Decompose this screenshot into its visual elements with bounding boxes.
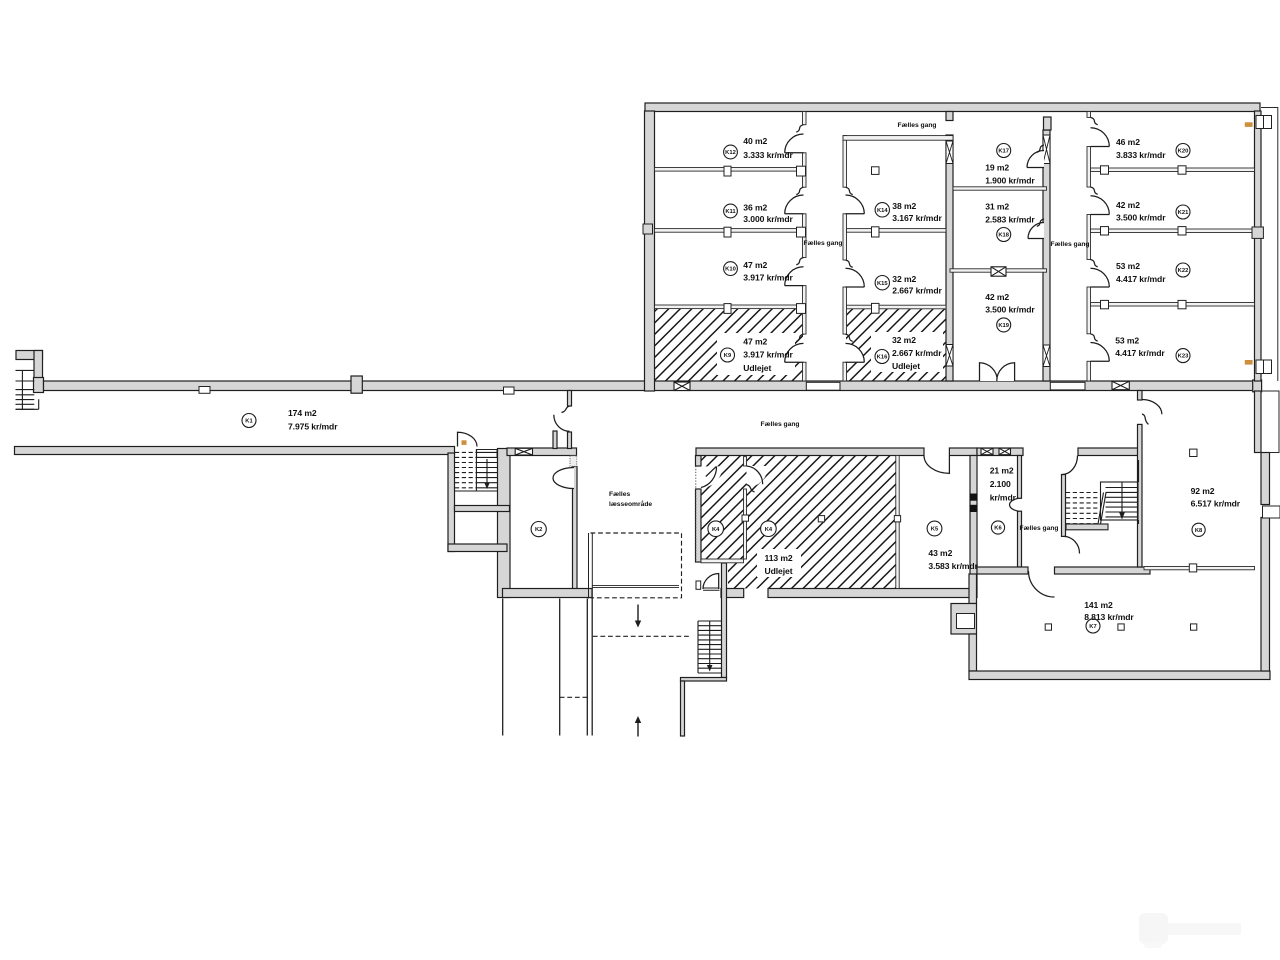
svg-text:46 m2: 46 m2 bbox=[1116, 137, 1140, 147]
svg-text:Udlejet: Udlejet bbox=[743, 363, 771, 373]
svg-text:K14: K14 bbox=[877, 208, 888, 214]
svg-text:53 m2: 53 m2 bbox=[1115, 336, 1139, 346]
svg-text:42 m2: 42 m2 bbox=[985, 292, 1009, 302]
svg-text:Fælles gang: Fælles gang bbox=[803, 240, 842, 247]
svg-text:6.517 kr/mdr: 6.517 kr/mdr bbox=[1191, 498, 1241, 508]
svg-text:K7: K7 bbox=[1089, 624, 1096, 630]
svg-text:3.583 kr/mdr: 3.583 kr/mdr bbox=[928, 561, 978, 571]
svg-text:3.500 kr/mdr: 3.500 kr/mdr bbox=[1116, 213, 1166, 223]
svg-text:40 m2: 40 m2 bbox=[743, 136, 767, 146]
svg-text:3.833 kr/mdr: 3.833 kr/mdr bbox=[1116, 150, 1166, 160]
svg-text:K23: K23 bbox=[1178, 354, 1189, 360]
svg-text:K21: K21 bbox=[1178, 210, 1189, 216]
svg-text:32 m2: 32 m2 bbox=[892, 335, 916, 345]
svg-text:38 m2: 38 m2 bbox=[892, 201, 916, 211]
svg-text:Udlejet: Udlejet bbox=[892, 361, 920, 371]
svg-text:4.417 kr/mdr: 4.417 kr/mdr bbox=[1116, 274, 1166, 284]
svg-text:3.000 kr/mdr: 3.000 kr/mdr bbox=[743, 214, 793, 224]
svg-text:2.100: 2.100 bbox=[990, 479, 1011, 489]
svg-text:7.975 kr/mdr: 7.975 kr/mdr bbox=[288, 422, 338, 432]
svg-text:3.333 kr/mdr: 3.333 kr/mdr bbox=[743, 150, 793, 160]
svg-text:4.417 kr/mdr: 4.417 kr/mdr bbox=[1115, 348, 1165, 358]
svg-text:3.917 kr/mdr: 3.917 kr/mdr bbox=[743, 350, 793, 360]
svg-text:K16: K16 bbox=[877, 355, 888, 361]
svg-text:K18: K18 bbox=[998, 233, 1009, 239]
svg-text:K4: K4 bbox=[765, 527, 773, 533]
svg-text:47 m2: 47 m2 bbox=[743, 337, 767, 347]
svg-text:43 m2: 43 m2 bbox=[928, 548, 952, 558]
svg-text:3.917 kr/mdr: 3.917 kr/mdr bbox=[743, 273, 793, 283]
svg-text:42 m2: 42 m2 bbox=[1116, 200, 1140, 210]
svg-text:47 m2: 47 m2 bbox=[743, 260, 767, 270]
svg-text:53 m2: 53 m2 bbox=[1116, 261, 1140, 271]
svg-text:K19: K19 bbox=[998, 323, 1009, 329]
svg-text:Fælles gang: Fælles gang bbox=[760, 421, 799, 428]
svg-text:Fælles gang: Fælles gang bbox=[1050, 241, 1089, 248]
svg-text:21 m2: 21 m2 bbox=[990, 466, 1014, 476]
svg-text:K5: K5 bbox=[931, 527, 939, 533]
svg-text:Fælles: Fælles bbox=[609, 491, 630, 498]
svg-text:1.900 kr/mdr: 1.900 kr/mdr bbox=[985, 176, 1035, 186]
svg-text:174 m2: 174 m2 bbox=[288, 408, 317, 418]
svg-text:K8: K8 bbox=[1195, 528, 1203, 534]
svg-text:92 m2: 92 m2 bbox=[1191, 486, 1215, 496]
svg-text:Fælles gang: Fælles gang bbox=[897, 122, 936, 129]
svg-text:8.813 kr/mdr: 8.813 kr/mdr bbox=[1084, 612, 1134, 622]
svg-text:K2: K2 bbox=[535, 527, 542, 533]
svg-text:113 m2: 113 m2 bbox=[765, 553, 793, 563]
svg-text:K17: K17 bbox=[998, 149, 1009, 155]
svg-text:K20: K20 bbox=[1178, 149, 1189, 155]
svg-text:31 m2: 31 m2 bbox=[985, 201, 1009, 211]
svg-text:K11: K11 bbox=[725, 209, 736, 215]
svg-text:K22: K22 bbox=[1178, 268, 1189, 274]
svg-text:141 m2: 141 m2 bbox=[1084, 600, 1113, 610]
svg-text:kr/mdr: kr/mdr bbox=[990, 492, 1017, 502]
svg-text:2.667 kr/mdr: 2.667 kr/mdr bbox=[892, 348, 942, 358]
svg-text:32 m2: 32 m2 bbox=[892, 274, 916, 284]
svg-text:Fælles gang: Fælles gang bbox=[1019, 525, 1058, 532]
svg-text:36 m2: 36 m2 bbox=[743, 203, 767, 213]
svg-text:læsseområde: læsseområde bbox=[609, 500, 652, 508]
svg-text:3.500 kr/mdr: 3.500 kr/mdr bbox=[985, 305, 1035, 315]
svg-text:3.167 kr/mdr: 3.167 kr/mdr bbox=[892, 213, 942, 223]
svg-text:K12: K12 bbox=[725, 150, 736, 156]
svg-text:K15: K15 bbox=[877, 281, 888, 287]
svg-text:K9: K9 bbox=[724, 353, 732, 359]
svg-text:19 m2: 19 m2 bbox=[985, 163, 1009, 173]
svg-text:K4: K4 bbox=[712, 527, 720, 533]
svg-text:Udlejet: Udlejet bbox=[765, 566, 793, 576]
svg-text:K1: K1 bbox=[245, 419, 253, 425]
svg-text:K6: K6 bbox=[994, 526, 1002, 532]
svg-text:K10: K10 bbox=[725, 267, 736, 273]
svg-text:2.667 kr/mdr: 2.667 kr/mdr bbox=[892, 286, 942, 296]
svg-text:2.583 kr/mdr: 2.583 kr/mdr bbox=[985, 214, 1035, 224]
